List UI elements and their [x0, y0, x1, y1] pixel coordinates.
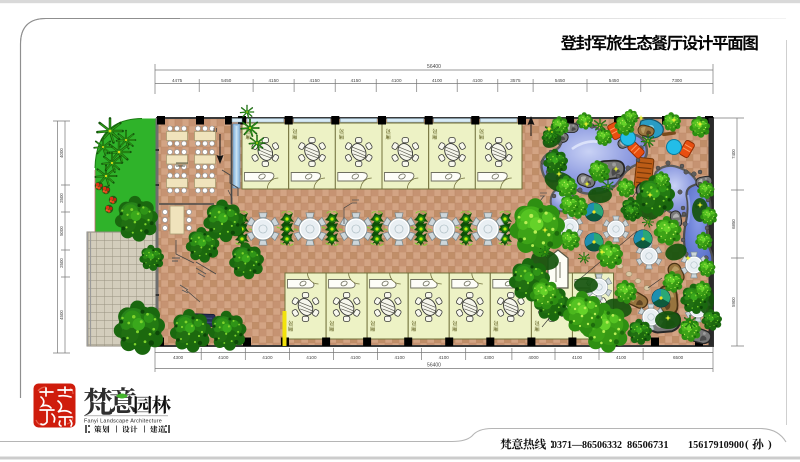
svg-text:4100: 4100 — [394, 355, 405, 360]
svg-text:5450: 5450 — [609, 78, 620, 83]
svg-text:4100: 4100 — [350, 355, 361, 360]
svg-text:2500: 2500 — [59, 258, 64, 268]
svg-text:7400: 7400 — [731, 149, 736, 159]
svg-text:Fanyi Landscape Architecture: Fanyi Landscape Architecture — [84, 419, 162, 425]
svg-text:): ) — [768, 439, 772, 451]
svg-text:7300: 7300 — [672, 78, 683, 83]
svg-text:86506731: 86506731 — [627, 440, 669, 451]
svg-text:4100: 4100 — [616, 355, 627, 360]
svg-text:5450: 5450 — [221, 78, 232, 83]
svg-text:4100: 4100 — [391, 78, 402, 83]
svg-text:56400: 56400 — [427, 64, 441, 70]
svg-text:4300: 4300 — [484, 355, 495, 360]
svg-text:6850: 6850 — [731, 219, 736, 229]
svg-text:4300: 4300 — [173, 355, 184, 360]
svg-text:4150: 4150 — [309, 78, 320, 83]
svg-text:4100: 4100 — [306, 355, 317, 360]
svg-text:3575: 3575 — [510, 78, 521, 83]
svg-text:4100: 4100 — [262, 355, 273, 360]
svg-text:4100: 4100 — [572, 355, 583, 360]
svg-text:(: ( — [745, 439, 749, 451]
svg-text:4150: 4150 — [268, 78, 279, 83]
svg-text:5000: 5000 — [59, 226, 64, 236]
svg-text:15617910900: 15617910900 — [688, 440, 744, 451]
svg-text:4500: 4500 — [59, 310, 64, 320]
svg-text:2500: 2500 — [59, 193, 64, 203]
svg-text:56400: 56400 — [427, 363, 441, 369]
svg-text:5900: 5900 — [731, 297, 736, 307]
svg-text:4100: 4100 — [218, 355, 229, 360]
svg-text:4100: 4100 — [439, 355, 450, 360]
svg-text:0371—86506332: 0371—86506332 — [552, 440, 622, 451]
svg-text:4475: 4475 — [172, 78, 183, 83]
svg-text:4150: 4150 — [351, 78, 362, 83]
svg-text:4000: 4000 — [528, 355, 539, 360]
svg-text:6500: 6500 — [673, 355, 684, 360]
svg-text:4100: 4100 — [472, 78, 483, 83]
svg-text:4100: 4100 — [432, 78, 443, 83]
svg-text:5450: 5450 — [555, 78, 566, 83]
svg-text:4000: 4000 — [59, 148, 64, 158]
